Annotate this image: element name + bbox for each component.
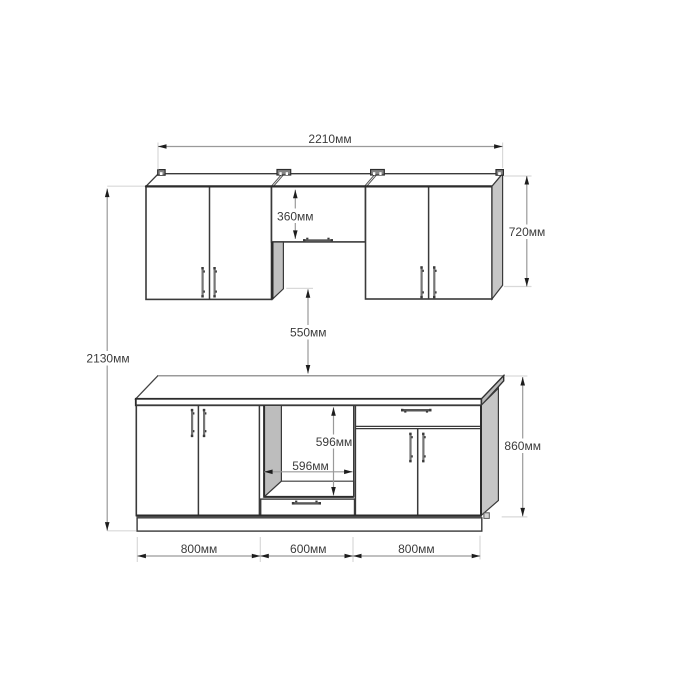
svg-text:360мм: 360мм	[277, 209, 314, 223]
svg-text:800мм: 800мм	[181, 542, 218, 556]
svg-text:2130мм: 2130мм	[86, 351, 129, 365]
svg-text:600мм: 600мм	[290, 542, 327, 556]
svg-text:720мм: 720мм	[509, 225, 546, 239]
svg-text:2210мм: 2210мм	[308, 132, 351, 146]
svg-text:596мм: 596мм	[292, 459, 329, 473]
svg-text:800мм: 800мм	[398, 542, 435, 556]
svg-text:596мм: 596мм	[316, 435, 353, 449]
svg-text:550мм: 550мм	[290, 325, 327, 339]
svg-text:860мм: 860мм	[504, 439, 541, 453]
